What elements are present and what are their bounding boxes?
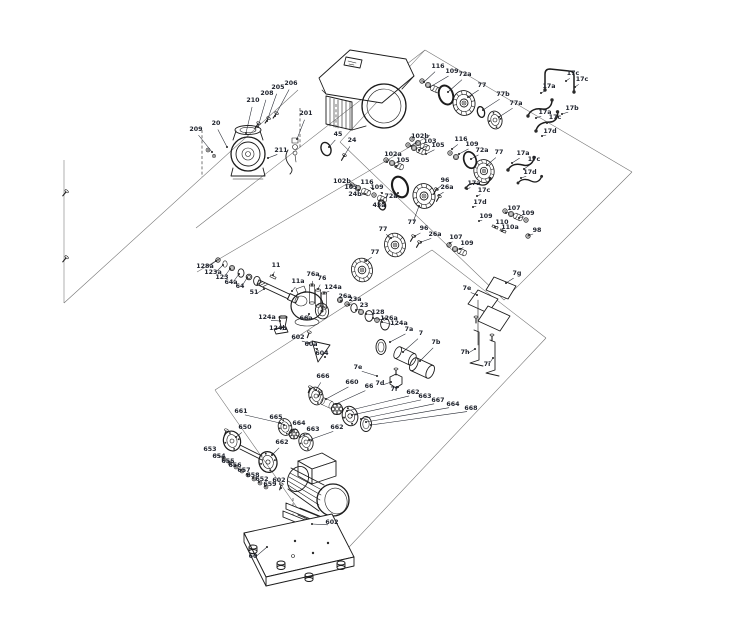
part-label: 77 — [371, 249, 380, 256]
leader-dot — [474, 348, 476, 350]
part-label: 7a — [405, 326, 414, 333]
part-label: 17d — [523, 169, 536, 176]
leader-dot — [466, 188, 468, 190]
part-label: 208 — [260, 90, 273, 97]
part-label: 7h — [461, 349, 470, 356]
part-label: 664 — [446, 401, 460, 408]
part-label: 11a — [291, 278, 304, 285]
part-leader — [506, 278, 514, 283]
part-label: 7e — [354, 364, 363, 371]
sleeve-icon — [392, 346, 418, 367]
part-label: 60 — [249, 553, 258, 560]
leader-dot — [449, 242, 451, 244]
part-label: 107 — [507, 205, 520, 212]
part-label: 98 — [533, 227, 542, 234]
part-label: 7e — [463, 285, 472, 292]
exploded-diagram-canvas: 20920210208205206201211452411610972a7777… — [0, 0, 752, 632]
leader-dot — [429, 86, 431, 88]
leader-dot — [211, 151, 213, 153]
leader-dot — [335, 403, 337, 405]
part-label: 604 — [315, 350, 329, 357]
leader-dot — [494, 226, 496, 228]
part-leader — [483, 99, 500, 110]
part-label: 77a — [509, 100, 522, 107]
part-label: 64 — [236, 283, 245, 290]
part-label: 77 — [408, 219, 417, 226]
leader-dot — [561, 113, 563, 115]
leader-dot — [215, 260, 217, 262]
leader-dot — [222, 264, 224, 266]
part-leader — [512, 158, 520, 163]
leader-dot — [540, 92, 542, 94]
leader-dot — [386, 161, 388, 163]
part-leader — [344, 146, 350, 156]
part-label: 17c — [528, 156, 541, 163]
part-label: 116 — [431, 63, 445, 70]
coupling-star-icon — [289, 429, 300, 439]
part-label: 26a — [428, 231, 441, 238]
leader-dot — [267, 157, 269, 159]
leader-dot — [486, 164, 488, 166]
leader-dot — [541, 135, 543, 137]
leader-dot — [447, 91, 449, 93]
part-label: 23 — [360, 302, 369, 309]
leader-dot — [272, 274, 274, 276]
exploded-diagram: 20920210208205206201211452411610972a7777… — [0, 0, 752, 632]
part-label: 653 — [203, 446, 216, 453]
leader-dot — [476, 195, 478, 197]
leader-dot — [263, 288, 265, 290]
leader-dot — [370, 424, 372, 426]
leader-dot — [328, 146, 330, 148]
part-label: 662 — [275, 439, 288, 446]
leader-dot — [498, 116, 500, 118]
leader-dot — [266, 120, 268, 122]
seal-kit-row-1 — [420, 69, 576, 133]
leader-dot — [381, 321, 383, 323]
leader-dot — [414, 235, 416, 237]
leader-dot — [470, 158, 472, 160]
leader-dot — [365, 313, 367, 315]
part-leader — [390, 334, 405, 342]
part-label: 20 — [212, 120, 221, 127]
drive-unit — [319, 50, 414, 161]
seal-kit-row-3 — [349, 143, 530, 284]
leader-dot — [364, 193, 366, 195]
leader-dot — [351, 414, 353, 416]
part-label: 661 — [234, 408, 247, 415]
leader-dot — [546, 122, 548, 124]
seal-disc-icon — [349, 256, 374, 284]
leader-dot — [410, 145, 412, 147]
part-leader — [246, 107, 252, 133]
frame-screw-icon — [61, 189, 69, 197]
part-label: 7i — [484, 361, 491, 368]
part-label: 109 — [479, 213, 492, 220]
leader-dot — [355, 309, 357, 311]
part-label: 109 — [521, 210, 534, 217]
leader-dot — [535, 117, 537, 119]
leader-dot — [467, 96, 469, 98]
leader-dot — [343, 155, 345, 157]
part-label: 668 — [464, 405, 477, 412]
part-label: 17b — [565, 105, 579, 112]
part-leader — [421, 238, 431, 242]
leader-dot — [299, 436, 301, 438]
part-leader — [424, 72, 435, 82]
part-label: 7 — [419, 330, 423, 337]
leader-dot — [574, 86, 576, 88]
leader-dot — [296, 138, 298, 140]
part-label: 66a — [299, 315, 312, 322]
part-leader — [362, 371, 377, 376]
part-label: 7f — [390, 386, 397, 393]
leader-dot — [360, 418, 362, 420]
part-label: 17c — [549, 114, 562, 121]
chamber-assembly — [274, 284, 389, 362]
leader-dot — [235, 436, 237, 438]
leader-dot — [402, 351, 404, 353]
part-label: 109 — [460, 240, 473, 247]
o-ring-icon — [319, 141, 333, 157]
part-label: 201 — [299, 110, 312, 117]
part-leader — [420, 348, 433, 361]
part-label: 11 — [272, 262, 281, 269]
part-label: 664 — [292, 420, 306, 427]
part-label: 26a — [440, 184, 453, 191]
part-leader — [198, 135, 212, 152]
part-label: 650 — [238, 424, 252, 431]
part-label: 663 — [306, 426, 319, 433]
part-label: 72a — [384, 193, 397, 200]
leader-dot — [274, 115, 276, 117]
leader-dot — [311, 284, 313, 286]
part-label: 205 — [271, 84, 284, 91]
leader-dot — [389, 341, 391, 343]
part-label: 103 — [344, 184, 357, 191]
leader-dot — [323, 292, 325, 294]
part-label: 7b — [432, 339, 441, 346]
leader-dot — [291, 430, 293, 432]
leader-dot — [505, 282, 507, 284]
leader-dot — [476, 294, 478, 296]
leader-dot — [565, 80, 567, 82]
part-label: 77 — [495, 149, 504, 156]
part-leader — [347, 396, 409, 411]
bracket-set — [468, 277, 516, 376]
part-label: 124b — [269, 325, 287, 332]
leader-dot — [390, 381, 392, 383]
part-leader — [326, 387, 348, 399]
part-leader — [562, 112, 568, 114]
leader-dot — [436, 188, 438, 190]
part-label: 45 — [334, 131, 343, 138]
part-label: 72a — [458, 71, 471, 78]
part-label: 602 — [325, 519, 338, 526]
leader-dot — [376, 375, 378, 377]
leader-dot — [315, 389, 317, 391]
leader-dot — [271, 454, 273, 456]
leader-dot — [283, 424, 285, 426]
leader-dot — [478, 220, 480, 222]
leader-dot — [246, 277, 248, 279]
part-label: 24b — [348, 191, 362, 198]
leader-dot — [520, 177, 522, 179]
part-label: 105 — [396, 157, 409, 164]
part-label: 662 — [330, 424, 343, 431]
part-label: 76 — [318, 275, 327, 282]
part-leader — [272, 448, 279, 455]
leader-dot — [418, 205, 420, 207]
leader-dot — [317, 288, 319, 290]
coupling-parts — [276, 385, 371, 452]
part-leader — [499, 108, 513, 117]
part-label: 663 — [418, 393, 431, 400]
leader-dot — [482, 109, 484, 111]
frame-screw-icon — [61, 255, 69, 263]
part-leader — [403, 339, 418, 352]
leader-dot — [245, 132, 247, 134]
leader-dot — [511, 162, 513, 164]
leader-dot — [325, 398, 327, 400]
leader-dot — [472, 206, 474, 208]
part-leader — [297, 120, 305, 139]
sleeve-icon — [408, 356, 437, 379]
part-label: 17d — [543, 128, 556, 135]
part-label: 109 — [445, 68, 458, 75]
part-label: 17d — [473, 199, 486, 206]
part-label: 665 — [269, 414, 282, 421]
leader-dot — [395, 165, 397, 167]
leader-dot — [229, 268, 231, 270]
seal-disc-icon — [451, 88, 478, 117]
part-leader — [448, 80, 462, 92]
part-leader — [426, 150, 434, 154]
part-label: 17c — [576, 76, 589, 83]
part-label: 77 — [478, 82, 487, 89]
part-label: 666 — [316, 373, 330, 380]
part-label: 7d — [376, 380, 385, 387]
part-label: 206 — [284, 80, 298, 87]
leader-dot — [528, 234, 530, 236]
leader-dot — [365, 260, 367, 262]
leader-dot — [372, 317, 374, 319]
leader-dot — [420, 241, 422, 243]
leader-dot — [238, 273, 240, 275]
leader-dot — [518, 217, 520, 219]
part-label: 17a — [542, 83, 555, 90]
leader-dot — [280, 487, 282, 489]
leader-dot — [346, 410, 348, 412]
part-label: 660 — [345, 379, 359, 386]
leader-dot — [418, 149, 420, 151]
part-label: 110a — [501, 224, 518, 231]
screw-icon — [340, 153, 347, 161]
part-leader — [267, 94, 277, 121]
part-label: 105 — [431, 142, 444, 149]
part-label: 602 — [291, 334, 304, 341]
sleeve-parts — [376, 340, 436, 389]
leader-dot — [451, 148, 453, 150]
part-label: 17c — [478, 187, 491, 194]
leader-dot — [458, 153, 460, 155]
part-label: 17a — [467, 180, 480, 187]
leader-dot — [279, 320, 281, 322]
seal-disc-icon — [382, 231, 407, 259]
leader-dot — [340, 300, 342, 302]
leader-dot — [266, 546, 268, 548]
part-leader — [275, 90, 289, 116]
leader-dot — [419, 360, 421, 362]
leader-dot — [365, 421, 367, 423]
part-label: 66 — [365, 383, 374, 390]
part-label: 96 — [441, 177, 450, 184]
part-label: 209 — [189, 126, 202, 133]
part-label: 51 — [250, 289, 259, 296]
part-label: 43a — [372, 202, 385, 209]
leader-dot — [438, 194, 440, 196]
leader-dot — [381, 192, 383, 194]
part-label: 124a — [324, 284, 341, 291]
leader-dot — [423, 81, 425, 83]
part-leader — [257, 289, 264, 293]
part-label: 602 — [272, 477, 285, 484]
washer-icon — [212, 154, 215, 157]
part-label: 124a — [258, 314, 275, 321]
part-label: 211 — [274, 147, 287, 154]
leader-dot — [291, 290, 293, 292]
leader-dot — [390, 237, 392, 239]
part-label: 77 — [379, 226, 388, 233]
part-leader — [371, 412, 467, 425]
part-label: 210 — [246, 97, 260, 104]
part-label: 24 — [348, 137, 357, 144]
leader-dot — [492, 357, 494, 359]
leader-dot — [459, 248, 461, 250]
flange-icon — [486, 110, 503, 131]
leader-dot — [308, 439, 310, 441]
part-label: 60a — [304, 341, 317, 348]
coupling-star-icon — [331, 404, 343, 415]
leader-dot — [311, 523, 313, 525]
part-leader — [218, 130, 227, 147]
leader-dot — [425, 153, 427, 155]
leader-dot — [505, 212, 507, 214]
part-leader — [336, 391, 365, 404]
part-label: 7g — [513, 270, 522, 277]
part-label: 667 — [431, 397, 444, 404]
part-leader — [329, 140, 335, 147]
part-leader — [268, 154, 277, 158]
part-label: 72a — [475, 147, 488, 154]
leader-dot — [257, 126, 259, 128]
part-label: 109 — [370, 184, 383, 191]
leader-dot — [226, 146, 228, 148]
seal-disc-icon — [411, 181, 438, 210]
leader-dot — [348, 304, 350, 306]
part-label: 77b — [496, 91, 510, 98]
